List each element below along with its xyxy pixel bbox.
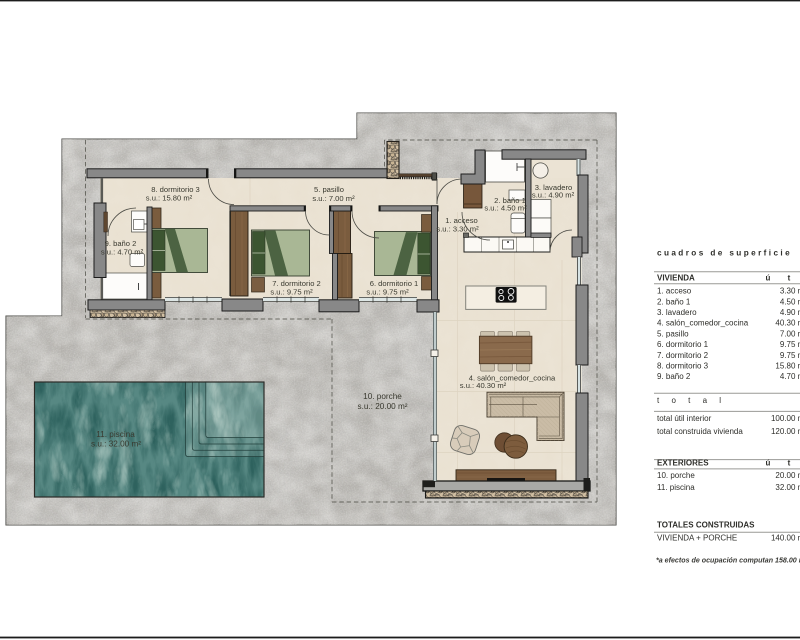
svg-text:3.30 m²: 3.30 m² xyxy=(780,287,800,296)
svg-text:2. baño 1: 2. baño 1 xyxy=(657,297,691,306)
svg-text:ú t i l: ú t i l xyxy=(766,458,800,467)
svg-text:4.70 m²: 4.70 m² xyxy=(780,372,800,381)
svg-text:10. porche: 10. porche xyxy=(657,471,695,480)
svg-text:total útil interior: total útil interior xyxy=(657,414,712,423)
svg-text:s.u.: 4.70 m²: s.u.: 4.70 m² xyxy=(101,248,144,257)
svg-text:EXTERIORES: EXTERIORES xyxy=(657,458,709,467)
svg-text:10. porche: 10. porche xyxy=(363,392,402,401)
svg-text:TOTALES CONSTRUIDAS: TOTALES CONSTRUIDAS xyxy=(657,520,755,529)
svg-text:*a efectos de ocupación comput: *a efectos de ocupación computan 158.00 … xyxy=(656,557,800,565)
svg-text:s.u.: 9.75 m²: s.u.: 9.75 m² xyxy=(366,288,409,297)
svg-text:4.90 m²: 4.90 m² xyxy=(780,308,800,317)
svg-text:VIVIENDA + PORCHE: VIVIENDA + PORCHE xyxy=(657,533,737,542)
svg-text:s.u.: 9.75 m²: s.u.: 9.75 m² xyxy=(270,288,313,297)
svg-text:1. acceso: 1. acceso xyxy=(657,287,692,296)
svg-text:20.00 m²: 20.00 m² xyxy=(775,471,800,480)
svg-text:120.00 m²: 120.00 m² xyxy=(771,427,800,436)
svg-text:7.00 m²: 7.00 m² xyxy=(780,329,800,338)
svg-text:total construida vivienda: total construida vivienda xyxy=(657,427,743,436)
svg-text:40.30 m²: 40.30 m² xyxy=(775,319,800,328)
svg-text:9.75 m²: 9.75 m² xyxy=(780,340,800,349)
svg-text:s.u.: 40.30 m²: s.u.: 40.30 m² xyxy=(460,381,507,390)
svg-text:cuadros de superficie: cuadros de superficie xyxy=(657,249,792,258)
svg-text:VIVIENDA: VIVIENDA xyxy=(657,274,695,283)
svg-text:3. lavadero: 3. lavadero xyxy=(657,308,697,317)
svg-text:9. baño 2: 9. baño 2 xyxy=(657,372,691,381)
svg-text:140.00 m²: 140.00 m² xyxy=(771,533,800,542)
svg-text:s.u.: 32.00 m²: s.u.: 32.00 m² xyxy=(91,440,141,449)
svg-text:s.u.: 20.00 m²: s.u.: 20.00 m² xyxy=(357,402,407,411)
svg-text:100.00 m²: 100.00 m² xyxy=(771,414,800,423)
svg-text:15.80 m²: 15.80 m² xyxy=(775,362,800,371)
svg-text:s.u.: 4.90 m²: s.u.: 4.90 m² xyxy=(532,191,575,200)
svg-text:4. salón_comedor_cocina: 4. salón_comedor_cocina xyxy=(657,319,749,328)
svg-text:8. dormitorio 3: 8. dormitorio 3 xyxy=(657,362,709,371)
svg-text:4.50 m²: 4.50 m² xyxy=(780,297,800,306)
svg-text:s.u.: 4.50 m²: s.u.: 4.50 m² xyxy=(484,204,527,213)
svg-text:11. piscina: 11. piscina xyxy=(96,430,135,439)
svg-text:s.u.: 3.30 m²: s.u.: 3.30 m² xyxy=(436,225,479,234)
svg-text:32.00 m²: 32.00 m² xyxy=(775,483,800,492)
svg-text:s.u.: 15.80 m²: s.u.: 15.80 m² xyxy=(146,194,193,203)
svg-text:9.75 m²: 9.75 m² xyxy=(780,351,800,360)
svg-text:11. piscina: 11. piscina xyxy=(657,483,695,492)
svg-text:5. pasillo: 5. pasillo xyxy=(657,329,689,338)
svg-text:s.u.: 7.00 m²: s.u.: 7.00 m² xyxy=(312,194,355,203)
svg-text:7. dormitorio 2: 7. dormitorio 2 xyxy=(657,351,709,360)
svg-text:5. pasillo: 5. pasillo xyxy=(314,185,344,194)
svg-text:ú t i l: ú t i l xyxy=(766,274,800,283)
svg-text:t o t a l: t o t a l xyxy=(657,396,726,405)
svg-text:6. dormitorio 1: 6. dormitorio 1 xyxy=(657,340,709,349)
